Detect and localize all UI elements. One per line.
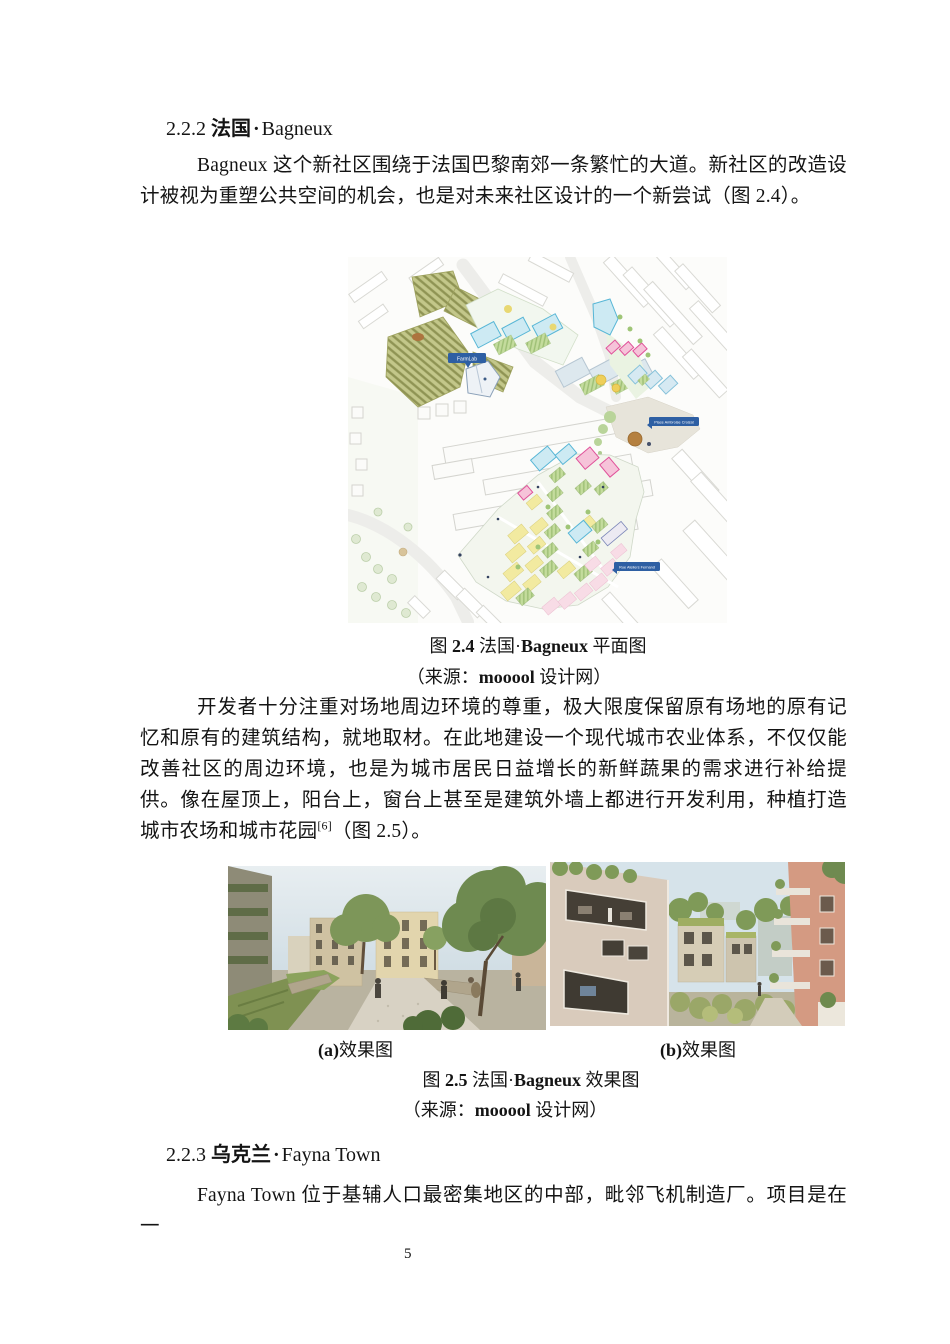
subcaption-b-text: 效果图 <box>682 1040 736 1060</box>
paragraph-2-text: 开发者十分注重对场地周边环境的尊重，极大限度保留原有场地的原有记忆和原有的建筑结… <box>140 697 847 842</box>
source-site: mooool <box>475 1100 531 1120</box>
paragraph-2: 开发者十分注重对场地周边环境的尊重，极大限度保留原有场地的原有记忆和原有的建筑结… <box>140 692 847 847</box>
section-heading-222: 2.2.2 法国·Bagneux <box>166 112 333 141</box>
heading-number: 2.2.3 <box>166 1144 211 1166</box>
subcaption-a-label: (a) <box>318 1040 339 1060</box>
photo-b-rendering <box>550 862 845 1026</box>
caption-mid: 法国· <box>474 636 521 656</box>
caption-prefix: 图 <box>422 1070 445 1090</box>
subcaption-a: (a)效果图 <box>318 1036 393 1062</box>
source-prefix: （来源： <box>403 1100 475 1120</box>
figure-25-caption: 图 2.5 法国·Bagneux 效果图 <box>342 1066 720 1092</box>
heading-en: Bagneux <box>262 118 333 140</box>
photo-a-image <box>228 866 546 1030</box>
paragraph-3: Fayna Town 位于基辅人口最密集地区的中部，毗邻飞机制造厂。项目是在一 <box>140 1180 847 1242</box>
site-plan-image: FarmLab Place Ambroise Croizat Rue Ateli… <box>348 257 727 623</box>
figure-24-source: （来源：mooool 设计网） <box>320 663 698 689</box>
caption-number: 2.5 <box>445 1070 468 1090</box>
figure-24-caption: 图 2.4 法国·Bagneux 平面图 <box>349 632 727 658</box>
heading-cn: 乌克兰 <box>211 1144 271 1166</box>
map-label-place: Place Ambroise Croizat <box>654 421 694 425</box>
subcaption-a-text: 效果图 <box>339 1040 393 1060</box>
source-prefix: （来源： <box>407 667 479 687</box>
subcaption-b-label: (b) <box>660 1040 682 1060</box>
caption-name: Bagneux <box>514 1070 581 1090</box>
paragraph-2-tail: （图 2.5）。 <box>332 821 431 842</box>
photo-a-rendering <box>228 866 546 1030</box>
figure-24-site-plan: FarmLab Place Ambroise Croizat Rue Ateli… <box>348 257 727 623</box>
heading-cn: 法国 <box>211 118 251 140</box>
source-tail: 设计网） <box>531 1100 608 1120</box>
heading-en: Fayna Town <box>282 1144 381 1166</box>
subcaption-b: (b)效果图 <box>660 1036 736 1062</box>
paragraph-1: Bagneux 这个新社区围绕于法国巴黎南郊一条繁忙的大道。新社区的改造设计被视… <box>140 150 847 212</box>
caption-tail: 效果图 <box>581 1070 640 1090</box>
heading-dot: · <box>251 118 262 140</box>
page-number: 5 <box>404 1246 412 1263</box>
section-heading-223: 2.2.3 乌克兰·Fayna Town <box>166 1138 380 1167</box>
heading-number: 2.2.2 <box>166 118 211 140</box>
caption-prefix: 图 <box>429 636 452 656</box>
document-page: 2.2.2 法国·Bagneux Bagneux 这个新社区围绕于法国巴黎南郊一… <box>0 0 950 1344</box>
source-site: mooool <box>479 667 535 687</box>
caption-mid: 法国· <box>467 1070 514 1090</box>
footnote-ref: [6] <box>317 819 332 833</box>
caption-name: Bagneux <box>521 636 588 656</box>
source-tail: 设计网） <box>535 667 612 687</box>
caption-tail: 平面图 <box>588 636 647 656</box>
map-label-rue: Rue Ateliers Fernand <box>619 566 655 570</box>
heading-dot: · <box>271 1144 282 1166</box>
photo-b-image <box>550 862 845 1026</box>
figure-25-source: （来源：mooool 设计网） <box>316 1096 694 1122</box>
map-label-farmlab: FarmLab <box>457 357 477 363</box>
caption-number: 2.4 <box>452 636 475 656</box>
